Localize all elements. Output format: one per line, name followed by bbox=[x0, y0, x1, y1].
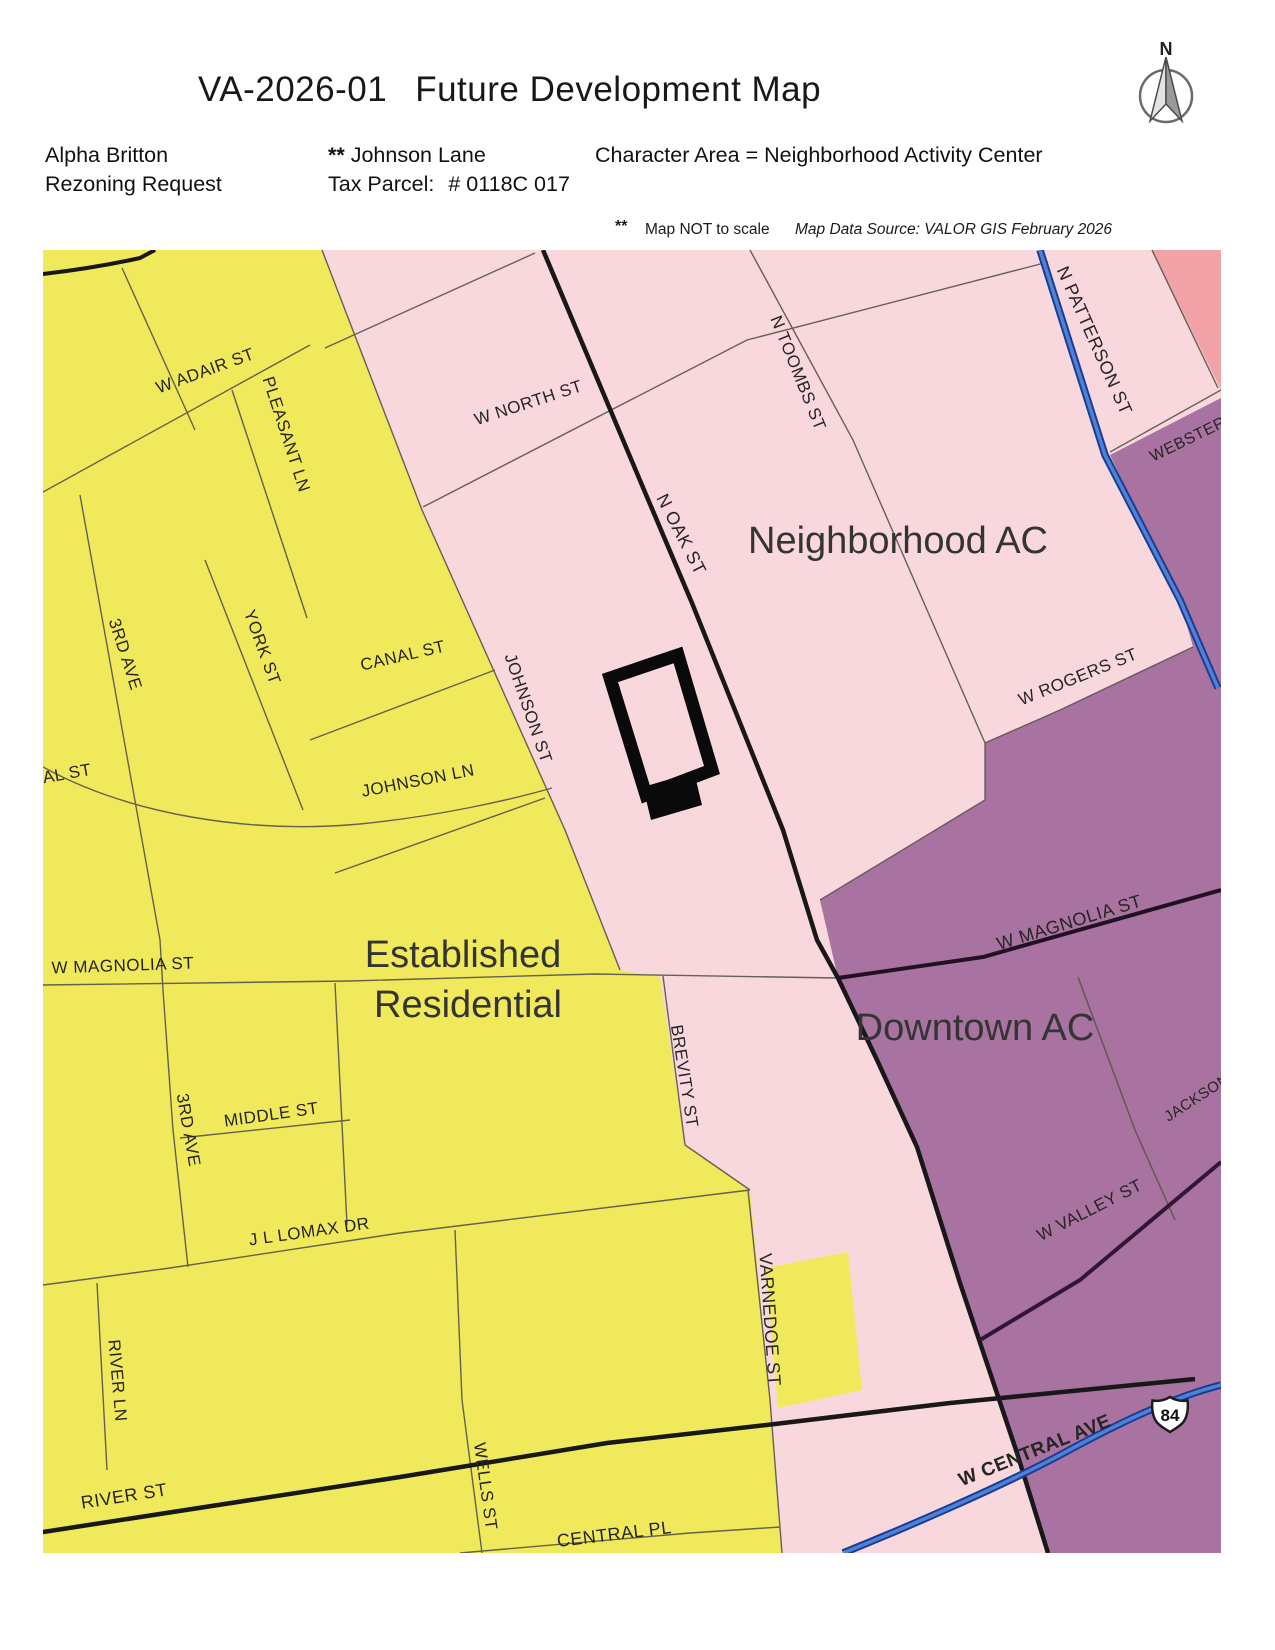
north-arrow-icon: N bbox=[1140, 39, 1192, 122]
area-label: Downtown AC bbox=[856, 1007, 1095, 1049]
map-canvas: N bbox=[0, 0, 1275, 1650]
area-label: Neighborhood AC bbox=[748, 520, 1048, 562]
area-label: Residential bbox=[374, 984, 562, 1026]
route-number: 84 bbox=[1161, 1406, 1180, 1425]
north-label: N bbox=[1160, 39, 1173, 59]
area-label: Established bbox=[365, 934, 561, 976]
